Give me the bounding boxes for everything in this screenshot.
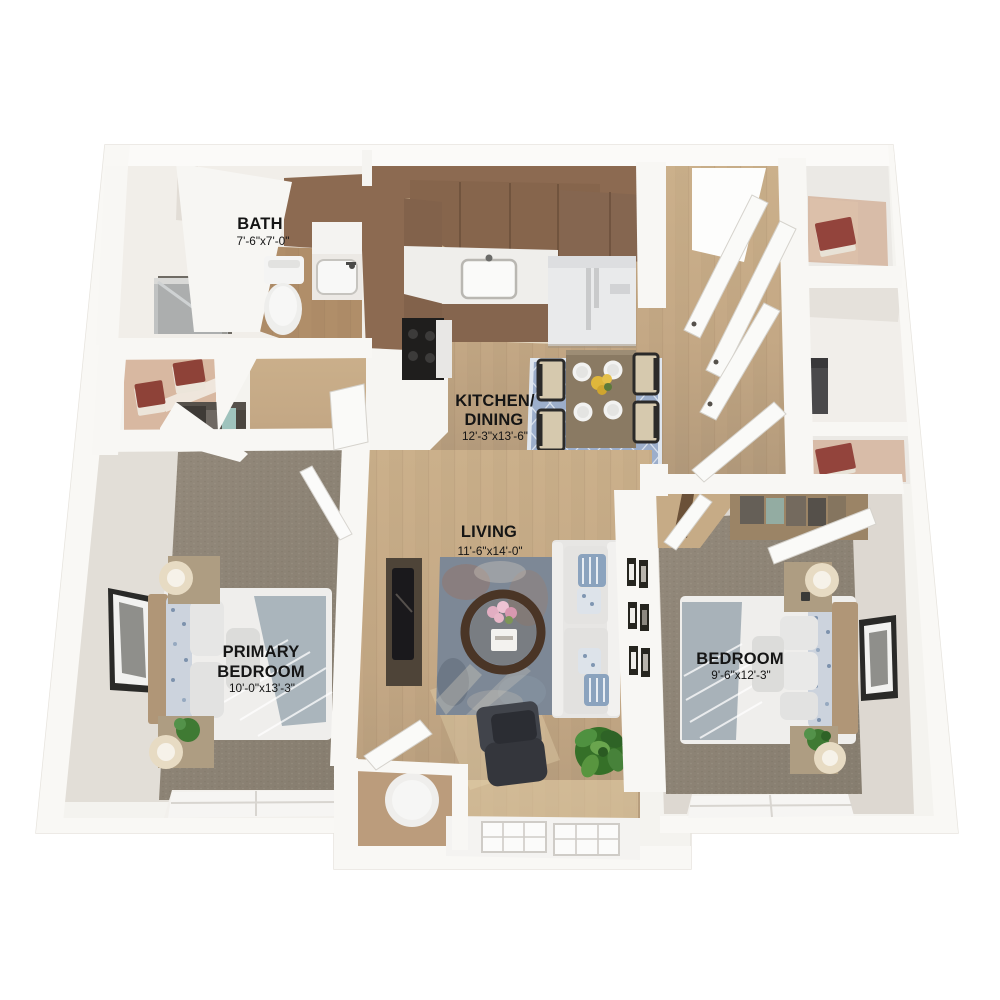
svg-text:DINING: DINING xyxy=(465,411,524,429)
svg-text:KITCHEN/: KITCHEN/ xyxy=(455,392,535,410)
svg-text:BATH: BATH xyxy=(237,215,282,233)
svg-text:12'-3"x13'-6": 12'-3"x13'-6" xyxy=(462,429,528,443)
svg-text:BEDROOM: BEDROOM xyxy=(217,663,305,681)
svg-text:11'-6"x14'-0": 11'-6"x14'-0" xyxy=(457,544,522,558)
svg-text:9'-6"x12'-3": 9'-6"x12'-3" xyxy=(711,668,770,682)
svg-text:LIVING: LIVING xyxy=(461,523,517,541)
svg-text:PRIMARY: PRIMARY xyxy=(223,643,300,661)
svg-text:7'-6"x7'-0": 7'-6"x7'-0" xyxy=(237,234,290,248)
svg-text:BEDROOM: BEDROOM xyxy=(696,650,784,668)
svg-text:10'-0"x13'-3": 10'-0"x13'-3" xyxy=(229,681,295,695)
